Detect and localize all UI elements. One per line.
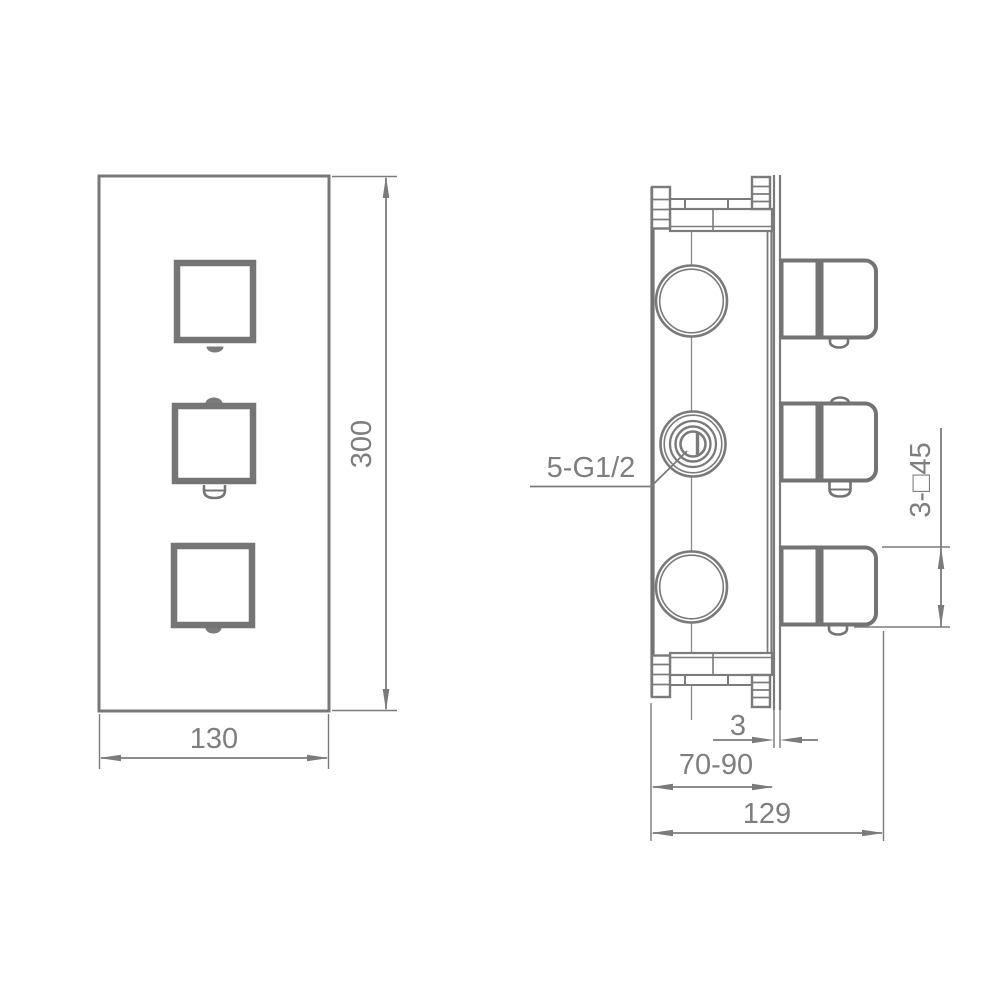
depth-range-label: 70-90 bbox=[679, 749, 753, 781]
dimension-width-130: 130 bbox=[99, 714, 329, 769]
shower-valve-dimension-drawing: 300 130 bbox=[0, 0, 1000, 1000]
side-handle-bottom bbox=[782, 548, 877, 635]
port-circle-top bbox=[656, 266, 727, 337]
top-left-screw bbox=[652, 187, 670, 229]
port-thread-label: 5-G1/2 bbox=[547, 452, 636, 484]
side-handle-top bbox=[782, 261, 877, 348]
port-circle-bottom bbox=[656, 552, 727, 623]
technical-drawing-page: 300 130 bbox=[0, 0, 1000, 1000]
handle-size-label: 3-□45 bbox=[905, 442, 937, 518]
top-mounting-bracket bbox=[652, 177, 772, 231]
width-dimension-label: 130 bbox=[190, 723, 238, 755]
overall-depth-label: 129 bbox=[743, 798, 791, 830]
dimension-plate-thickness-3: 3 bbox=[713, 710, 818, 743]
front-view: 300 130 bbox=[99, 176, 397, 769]
front-handle-square-bottom bbox=[174, 546, 252, 625]
top-right-screw bbox=[752, 177, 770, 209]
front-handle-square-top bbox=[177, 263, 253, 340]
bottom-right-screw bbox=[752, 675, 770, 707]
bottom-left-screw bbox=[652, 656, 670, 698]
bottom-mounting-bracket bbox=[652, 653, 772, 707]
plate-thickness-label: 3 bbox=[730, 710, 746, 742]
wall-plate-edge bbox=[774, 175, 780, 748]
front-handle-square-middle bbox=[175, 406, 253, 481]
side-view: 5-G1/2 3 70-90 129 bbox=[530, 175, 950, 841]
dimension-height-300: 300 bbox=[332, 176, 397, 711]
height-dimension-label: 300 bbox=[346, 420, 378, 468]
side-handle-middle bbox=[782, 398, 877, 497]
